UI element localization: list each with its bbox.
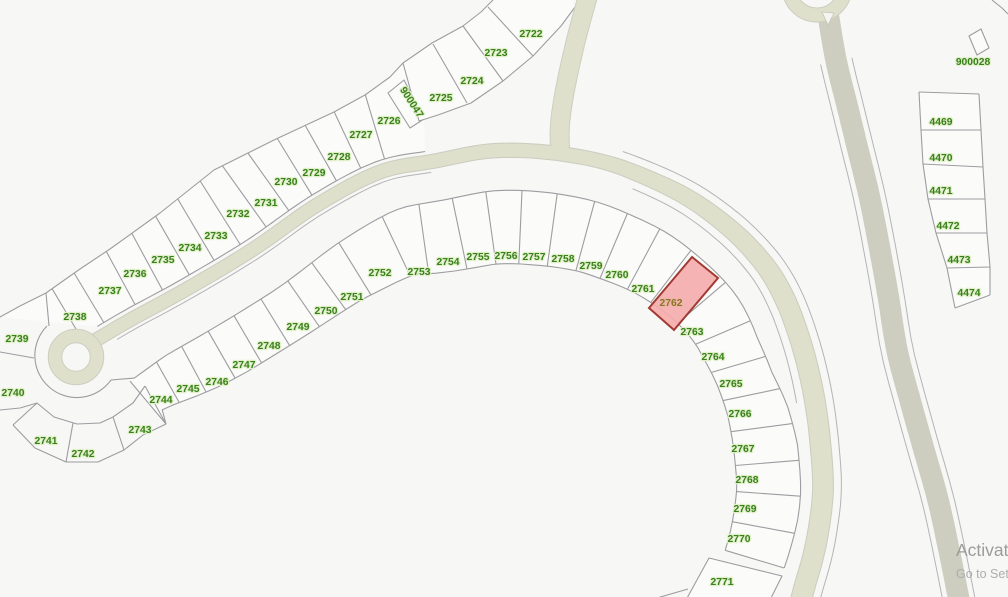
- svg-text:2769: 2769: [734, 504, 757, 515]
- svg-text:2734: 2734: [179, 243, 202, 254]
- svg-text:2724: 2724: [461, 76, 484, 87]
- svg-text:2752: 2752: [369, 268, 392, 279]
- svg-text:2732: 2732: [227, 209, 250, 220]
- svg-text:2741: 2741: [35, 436, 58, 447]
- svg-text:2750: 2750: [315, 306, 338, 317]
- svg-text:2738: 2738: [64, 312, 87, 323]
- svg-text:2751: 2751: [341, 292, 364, 303]
- svg-text:2747: 2747: [233, 360, 256, 371]
- svg-text:4472: 4472: [937, 221, 960, 232]
- svg-text:2755: 2755: [467, 252, 490, 263]
- svg-text:2760: 2760: [606, 270, 629, 281]
- svg-text:2736: 2736: [124, 269, 147, 280]
- svg-text:4469: 4469: [930, 117, 953, 128]
- svg-text:2728: 2728: [328, 152, 351, 163]
- svg-text:2731: 2731: [255, 198, 278, 209]
- svg-text:Activate Windows: Activate Windows: [956, 540, 1008, 560]
- svg-text:2753: 2753: [408, 267, 431, 278]
- svg-text:2759: 2759: [580, 261, 603, 272]
- svg-text:2748: 2748: [258, 341, 281, 352]
- svg-text:2757: 2757: [523, 252, 546, 263]
- svg-text:2771: 2771: [711, 577, 734, 588]
- svg-text:2725: 2725: [430, 93, 453, 104]
- svg-text:2733: 2733: [205, 231, 228, 242]
- svg-text:4471: 4471: [930, 186, 953, 197]
- svg-text:2735: 2735: [152, 255, 175, 266]
- svg-text:2722: 2722: [520, 29, 543, 40]
- svg-text:2758: 2758: [552, 254, 575, 265]
- svg-text:4470: 4470: [930, 153, 953, 164]
- svg-text:2767: 2767: [732, 444, 755, 455]
- svg-text:2749: 2749: [287, 322, 310, 333]
- svg-text:2723: 2723: [485, 48, 508, 59]
- svg-text:2761: 2761: [632, 284, 655, 295]
- svg-text:2727: 2727: [350, 130, 373, 141]
- svg-text:2744: 2744: [150, 395, 173, 406]
- svg-text:2726: 2726: [378, 116, 401, 127]
- svg-text:2730: 2730: [275, 177, 298, 188]
- svg-text:2756: 2756: [495, 251, 518, 262]
- svg-text:4474: 4474: [958, 288, 981, 299]
- svg-text:2740: 2740: [2, 388, 25, 399]
- svg-text:2762: 2762: [660, 298, 683, 309]
- svg-text:2729: 2729: [303, 168, 326, 179]
- svg-text:2737: 2737: [99, 286, 122, 297]
- svg-text:2743: 2743: [129, 425, 152, 436]
- svg-text:Go to Settings to activate Win: Go to Settings to activate Windows.: [956, 567, 1008, 581]
- svg-text:2763: 2763: [681, 327, 704, 338]
- svg-text:2764: 2764: [702, 352, 725, 363]
- svg-text:2770: 2770: [728, 534, 751, 545]
- svg-text:2766: 2766: [729, 409, 752, 420]
- svg-text:2742: 2742: [72, 449, 95, 460]
- svg-text:2739: 2739: [6, 334, 29, 345]
- svg-text:4473: 4473: [948, 255, 971, 266]
- svg-text:2745: 2745: [177, 384, 200, 395]
- svg-text:900028: 900028: [956, 57, 991, 68]
- svg-text:2765: 2765: [720, 379, 743, 390]
- svg-text:2768: 2768: [736, 475, 759, 486]
- svg-text:2754: 2754: [437, 257, 460, 268]
- svg-text:2746: 2746: [206, 377, 229, 388]
